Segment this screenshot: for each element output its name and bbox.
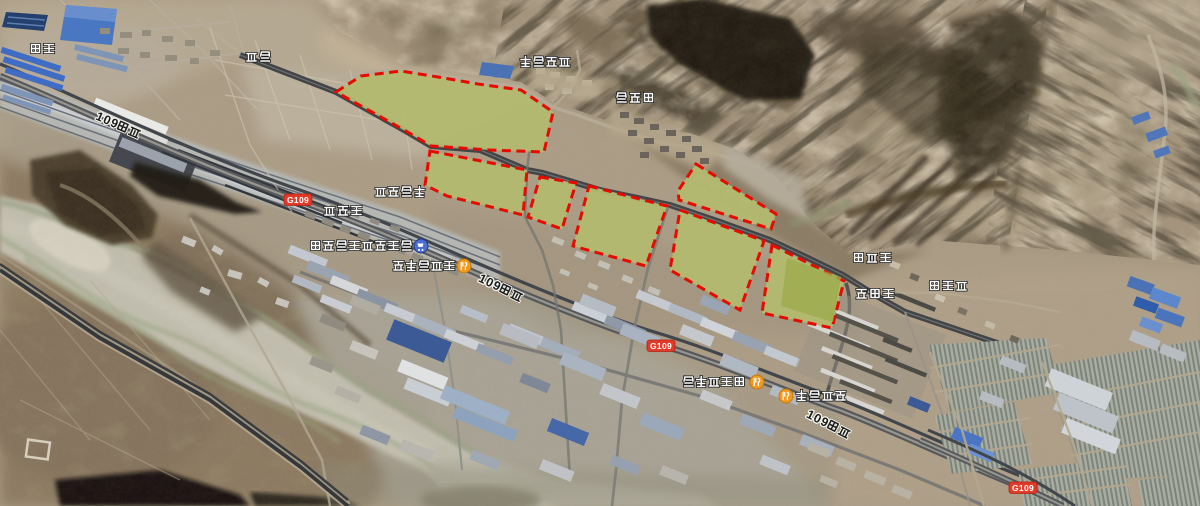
- svg-text:G109: G109: [1012, 483, 1034, 493]
- svg-text:G109: G109: [287, 195, 309, 205]
- svg-text:G109: G109: [650, 341, 672, 351]
